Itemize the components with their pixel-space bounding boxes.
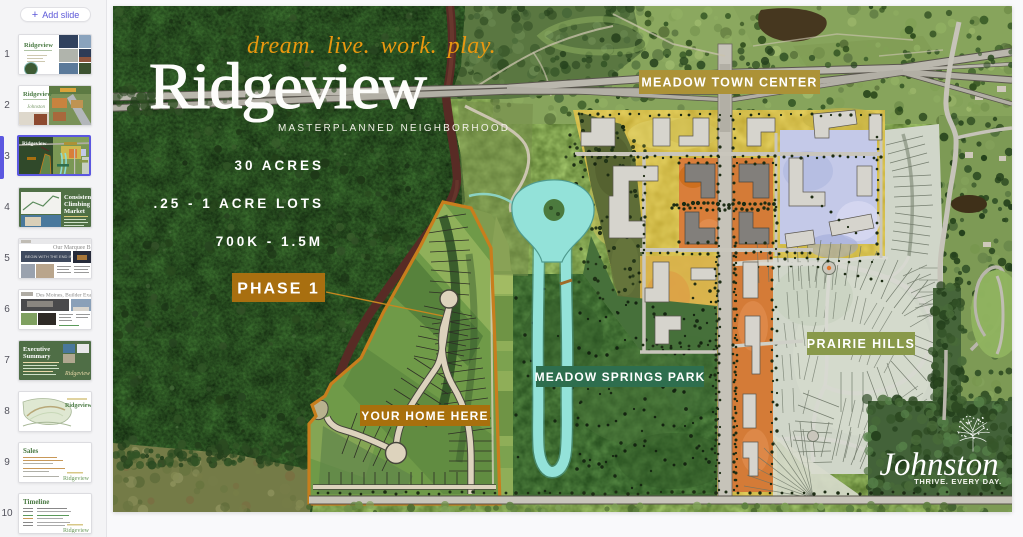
svg-text:Ridgeview: Ridgeview xyxy=(63,476,90,482)
svg-text:PRAIRIE HILLS: PRAIRIE HILLS xyxy=(807,337,915,351)
svg-text:MEADOW SPRINGS PARK: MEADOW SPRINGS PARK xyxy=(535,370,706,384)
svg-text:Summary: Summary xyxy=(23,353,51,360)
svg-text:Consistent: Consistent xyxy=(64,194,92,201)
svg-text:Market: Market xyxy=(64,208,86,215)
svg-text:PHASE 1: PHASE 1 xyxy=(237,280,319,297)
svg-text:Our Marquee Builder: Our Marquee Builder xyxy=(53,245,92,251)
svg-text:Executive: Executive xyxy=(23,346,50,353)
svg-text:Ridgeview: Ridgeview xyxy=(24,42,53,49)
svg-text:Des Moines, Builder Example: Des Moines, Builder Example xyxy=(36,293,92,299)
svg-text:Timeline: Timeline xyxy=(23,498,49,506)
svg-text:MEADOW TOWN CENTER: MEADOW TOWN CENTER xyxy=(641,76,817,90)
svg-text:Ridgeview: Ridgeview xyxy=(23,91,52,98)
svg-text:Climbing: Climbing xyxy=(64,201,91,208)
svg-text:Ridgeview: Ridgeview xyxy=(64,371,90,377)
svg-text:YOUR HOME HERE: YOUR HOME HERE xyxy=(361,409,488,423)
svg-text:Ridgeview: Ridgeview xyxy=(63,528,90,534)
svg-text:Ridgeview: Ridgeview xyxy=(22,141,46,147)
svg-text:Ridgeview: Ridgeview xyxy=(65,403,92,409)
svg-text:Sales: Sales xyxy=(23,447,38,455)
svg-text:Johnston: Johnston xyxy=(27,105,46,110)
